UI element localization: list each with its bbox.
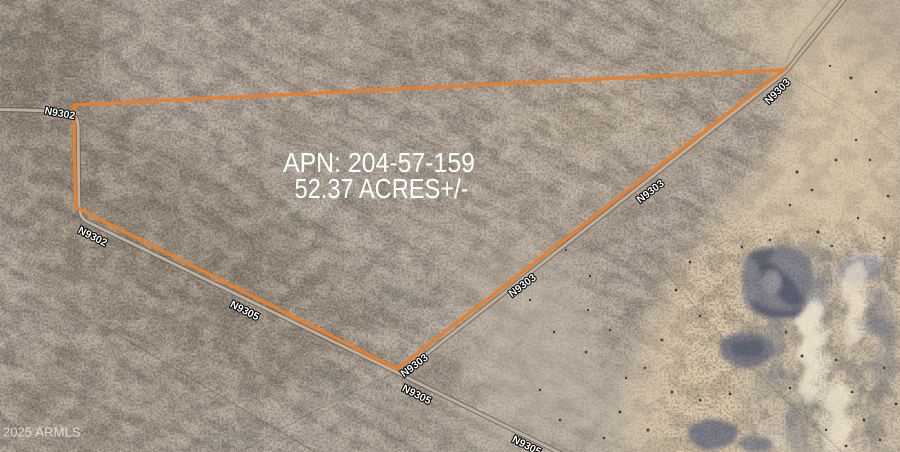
- svg-text:52.37 ACRES+/-: 52.37 ACRES+/-: [295, 173, 469, 204]
- svg-text:© 2025 ARMLS: © 2025 ARMLS: [0, 425, 81, 440]
